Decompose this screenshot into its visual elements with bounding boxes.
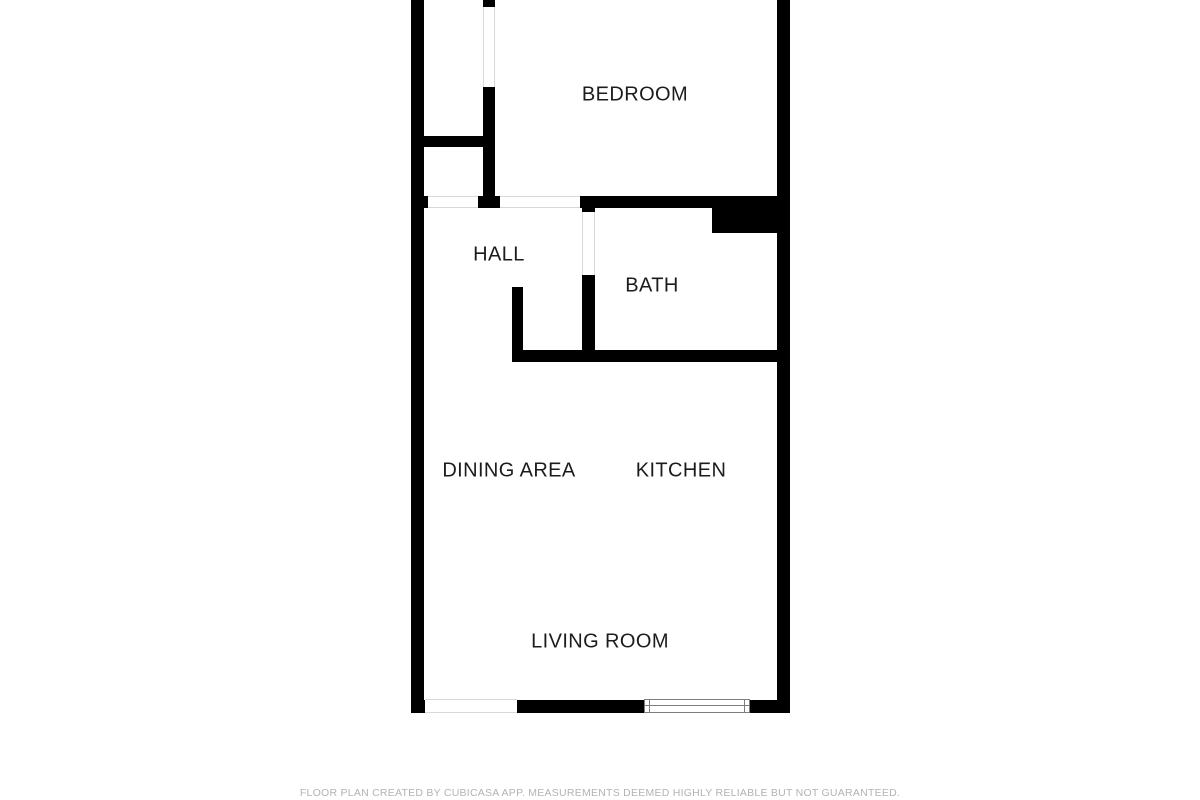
room-label-hall: HALL [473, 244, 525, 267]
door-opening-closet-hall [428, 196, 478, 208]
door-opening-hall-bedroom [500, 196, 580, 208]
left-outer-wall [411, 0, 424, 713]
room-label-living-room: LIVING ROOM [531, 631, 669, 654]
opening-bottom-left [425, 699, 517, 713]
floor-plan: BEDROOMHALLBATHDINING AREAKITCHENLIVING … [0, 0, 1200, 800]
door-opening-bedroom-closet [483, 7, 495, 87]
window-frame-right [744, 700, 745, 712]
living-room-window [644, 699, 750, 713]
room-label-bedroom: BEDROOM [582, 84, 688, 107]
closet-divider-wall [411, 136, 495, 147]
door-opening-hall-bath [582, 212, 595, 275]
closet-wall-top-stub [483, 0, 495, 7]
room-label-bath: BATH [625, 275, 678, 298]
room-label-kitchen: KITCHEN [636, 460, 727, 483]
window-pane-line [645, 705, 749, 706]
window-frame-left [649, 700, 650, 712]
room-label-dining-area: DINING AREA [442, 460, 575, 483]
hall-stub-wall [512, 287, 523, 350]
disclaimer-text: FLOOR PLAN CREATED BY CUBICASA APP. MEAS… [0, 787, 1200, 799]
kitchen-top-wall [512, 350, 790, 362]
bath-shaft [712, 207, 777, 233]
